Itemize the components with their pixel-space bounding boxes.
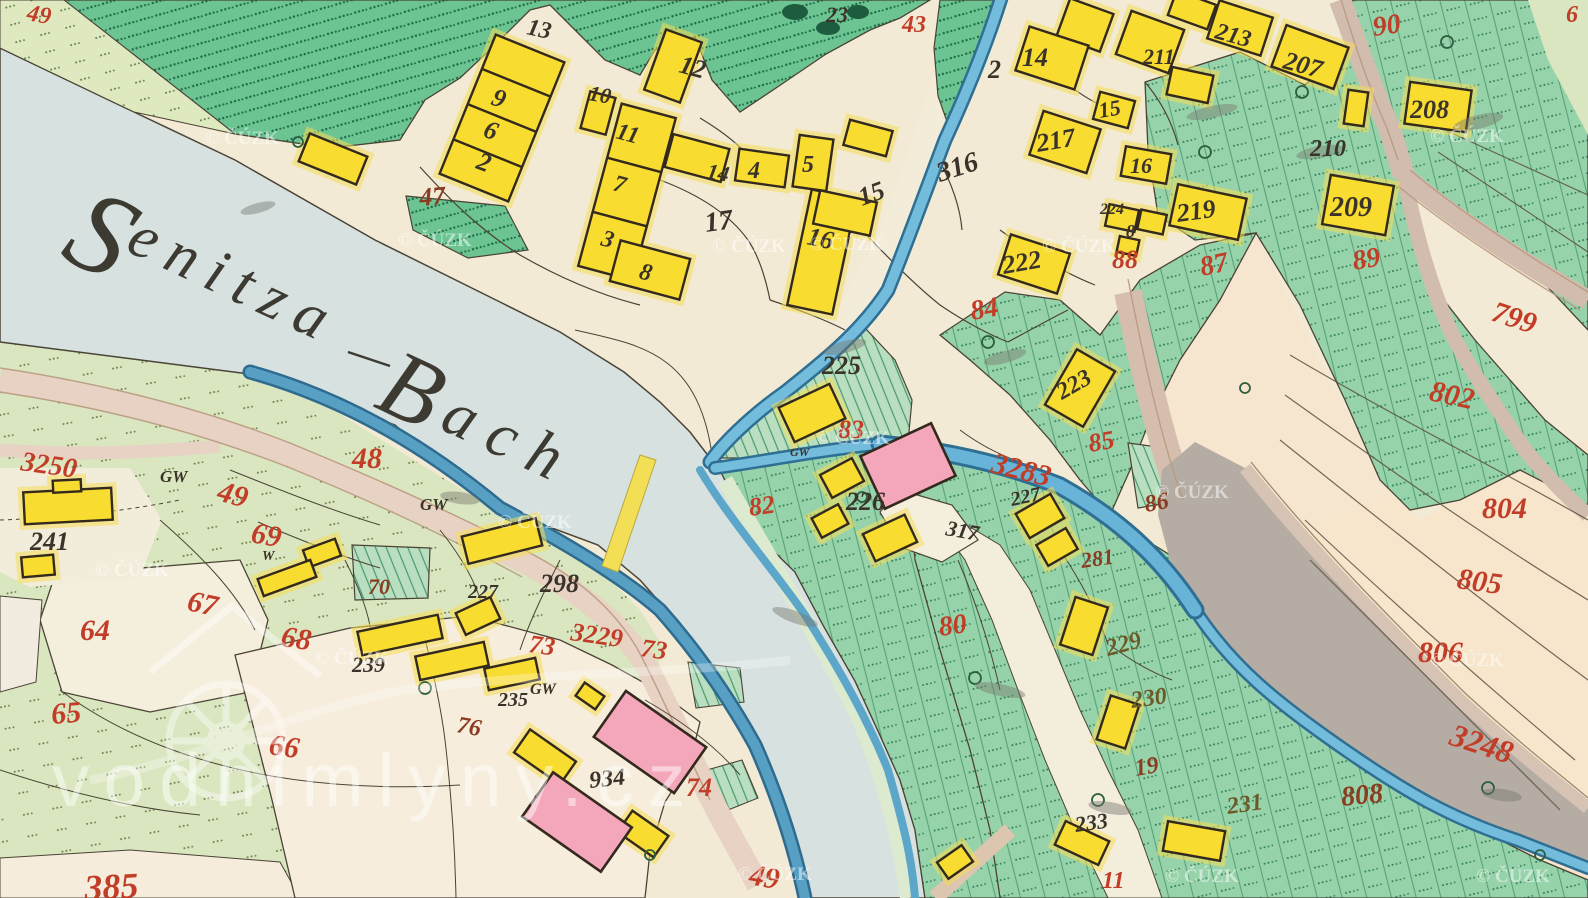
svg-text:84: 84 [968,292,1001,327]
svg-text:65: 65 [50,695,83,730]
svg-text:805: 805 [1455,562,1504,601]
svg-text:14: 14 [705,158,731,186]
svg-text:GW: GW [420,495,449,514]
svg-text:© ČÚZK: © ČÚZK [498,511,572,533]
svg-text:233: 233 [1072,808,1109,837]
svg-text:8: 8 [1126,221,1135,241]
svg-text:5: 5 [802,152,814,178]
svg-text:90: 90 [1371,8,1403,43]
svg-text:224: 224 [1099,201,1124,218]
svg-text:GW: GW [530,681,558,698]
svg-text:219: 219 [1174,194,1218,228]
svg-text:GW: GW [790,445,811,459]
svg-text:© ČÚZK: © ČÚZK [205,127,279,149]
svg-text:225: 225 [821,351,861,380]
svg-text:© ČÚZK: © ČÚZK [1155,481,1229,503]
svg-text:2: 2 [987,55,1001,84]
svg-text:4: 4 [747,158,760,184]
svg-text:298: 298 [539,569,579,598]
svg-text:10: 10 [587,80,613,108]
svg-text:43: 43 [901,12,926,38]
svg-text:211: 211 [1142,44,1175,69]
svg-text:© ČÚZK: © ČÚZK [1430,649,1504,671]
svg-text:209: 209 [1329,192,1372,223]
svg-text:© ČÚZK: © ČÚZK [712,235,786,257]
svg-text:GW: GW [160,467,189,486]
svg-text:64: 64 [80,614,110,647]
svg-text:14: 14 [1022,43,1048,72]
svg-text:85: 85 [1086,425,1117,458]
svg-text:23: 23 [825,2,848,27]
svg-text:208: 208 [1409,95,1449,124]
svg-text:49: 49 [24,0,53,30]
svg-text:© ČÚZK: © ČÚZK [1430,125,1504,147]
svg-text:210: 210 [1309,136,1346,162]
svg-text:© ČÚZK: © ČÚZK [315,647,389,669]
svg-text:© ČÚZK: © ČÚZK [810,233,884,255]
svg-text:227: 227 [467,581,499,603]
svg-text:© ČÚZK: © ČÚZK [398,229,472,251]
svg-text:vodnimlyny.cz: vodnimlyny.cz [52,738,699,822]
svg-text:© ČÚZK: © ČÚZK [1042,235,1116,257]
svg-text:16: 16 [1130,153,1152,178]
svg-text:© ČÚZK: © ČÚZK [1165,865,1239,887]
svg-text:© ČÚZK: © ČÚZK [1476,865,1550,887]
svg-text:70: 70 [368,574,390,599]
svg-text:808: 808 [1339,778,1384,813]
svg-text:88: 88 [1112,245,1138,274]
svg-text:241: 241 [29,527,69,556]
svg-text:15: 15 [1097,94,1123,122]
svg-text:235: 235 [497,689,528,711]
svg-text:48: 48 [351,442,382,475]
svg-text:80: 80 [937,608,969,643]
svg-text:11: 11 [1102,868,1125,894]
svg-text:69: 69 [249,516,284,554]
svg-text:385: 385 [82,865,139,898]
svg-text:281: 281 [1078,544,1115,573]
svg-text:231: 231 [1224,789,1264,820]
svg-text:230: 230 [1128,683,1168,714]
svg-text:© ČÚZK: © ČÚZK [95,559,169,581]
svg-text:47: 47 [417,181,447,212]
svg-text:© ČÚZK: © ČÚZK [816,427,890,449]
svg-text:89: 89 [1350,242,1383,277]
svg-text:804: 804 [1482,492,1527,525]
svg-text:19: 19 [1133,752,1161,782]
svg-text:82: 82 [747,490,777,522]
svg-text:17: 17 [703,204,736,239]
svg-text:73: 73 [527,629,557,661]
svg-text:73: 73 [639,633,669,665]
svg-text:© ČÚZK: © ČÚZK [738,863,812,885]
svg-text:6: 6 [1566,2,1578,28]
svg-text:226: 226 [845,487,885,516]
